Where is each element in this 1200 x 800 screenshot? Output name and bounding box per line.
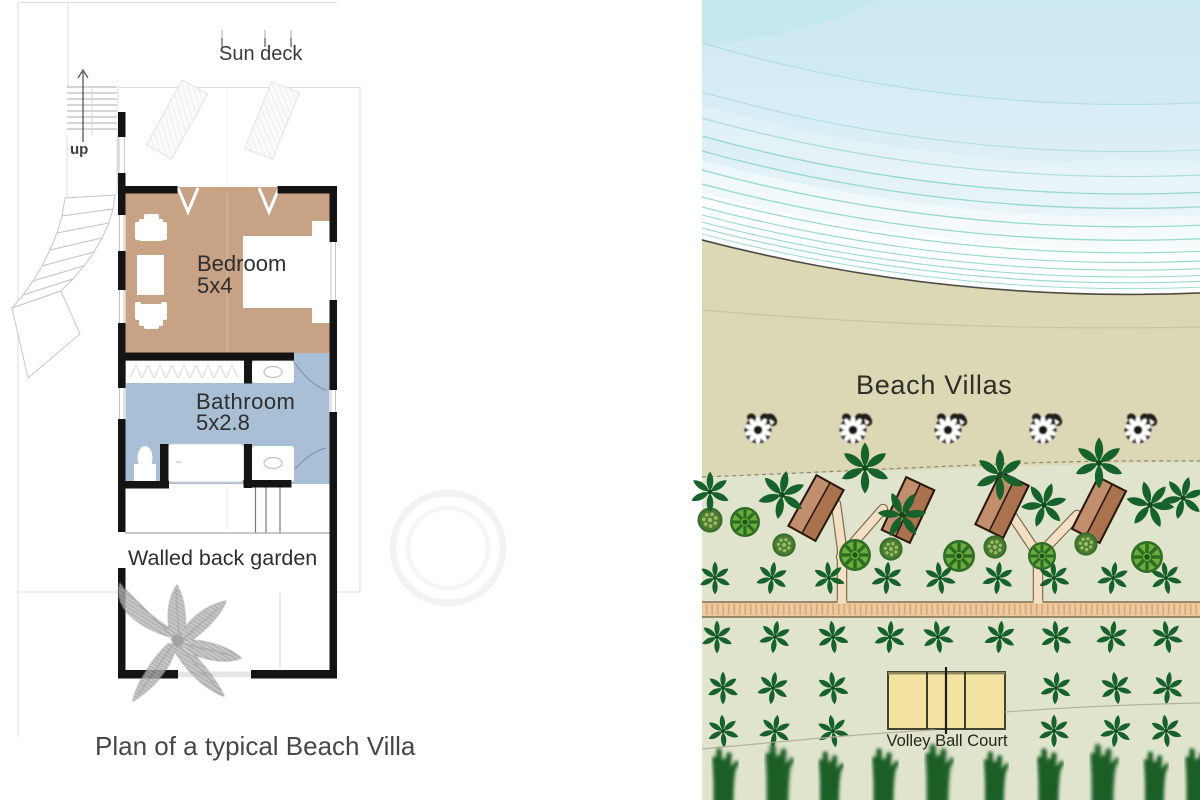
svg-text:5x4: 5x4	[197, 273, 232, 298]
svg-text:Beach Villas: Beach Villas	[856, 370, 1013, 400]
svg-text:Volley Ball Court: Volley Ball Court	[886, 732, 1007, 750]
svg-text:Walled back garden: Walled back garden	[128, 546, 317, 570]
svg-text:up: up	[70, 141, 88, 158]
svg-text:Sun deck: Sun deck	[219, 43, 303, 65]
svg-text:5x2.8: 5x2.8	[196, 410, 250, 435]
svg-text:Plan of a typical Beach Villa: Plan of a typical Beach Villa	[95, 731, 416, 761]
